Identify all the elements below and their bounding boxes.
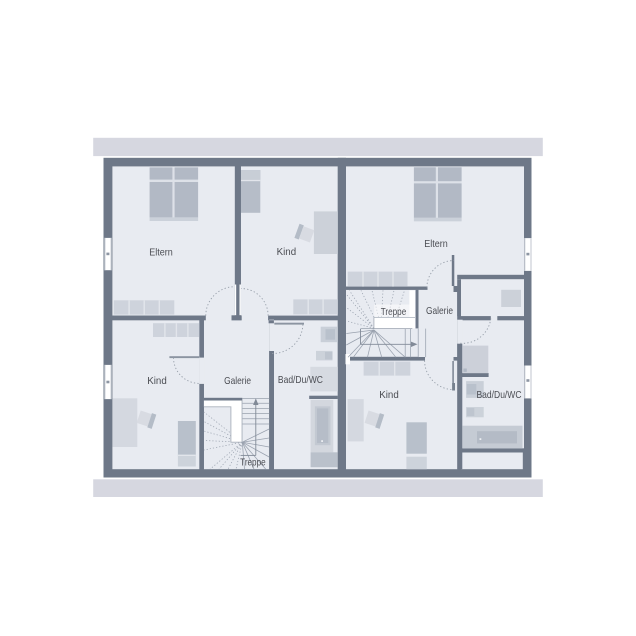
svg-text:Treppe: Treppe xyxy=(381,306,407,318)
svg-text:Bad/Du/WC: Bad/Du/WC xyxy=(278,374,323,386)
svg-text:Eltern: Eltern xyxy=(149,246,173,258)
svg-text:Galerie: Galerie xyxy=(224,375,251,387)
svg-text:Eltern: Eltern xyxy=(424,238,448,250)
svg-text:Kind: Kind xyxy=(147,375,167,387)
svg-text:Kind: Kind xyxy=(277,246,297,258)
svg-text:Treppe: Treppe xyxy=(240,456,266,468)
svg-text:Kind: Kind xyxy=(379,389,399,401)
svg-text:Galerie: Galerie xyxy=(426,305,453,317)
svg-text:Bad/Du/WC: Bad/Du/WC xyxy=(477,389,522,401)
